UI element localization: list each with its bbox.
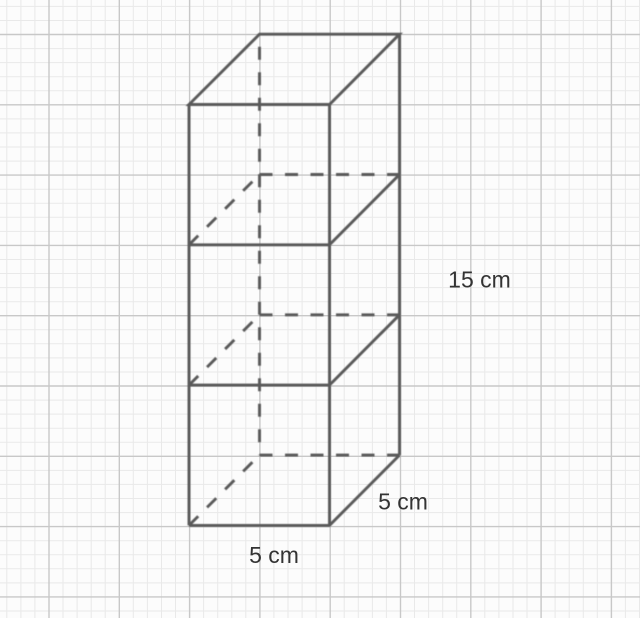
svg-text:5 cm: 5 cm	[249, 542, 299, 568]
svg-text:5 cm: 5 cm	[378, 488, 428, 514]
svg-text:15 cm: 15 cm	[448, 267, 511, 293]
